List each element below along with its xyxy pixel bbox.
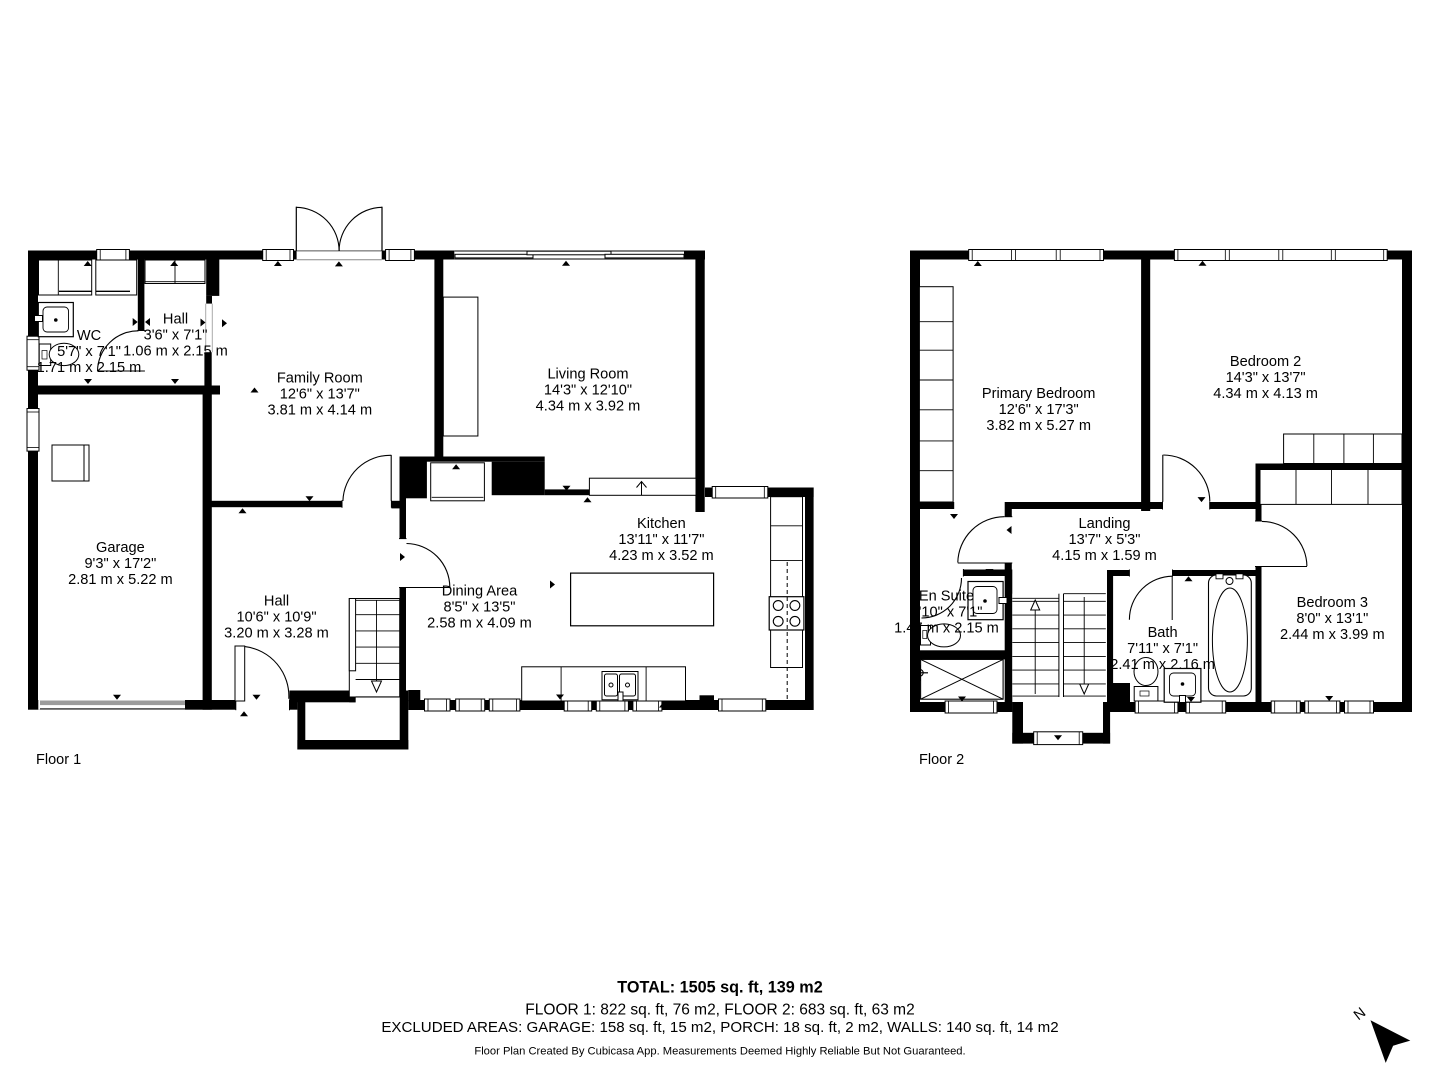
svg-text:4.34 m x 3.92 m: 4.34 m x 3.92 m [536,399,641,415]
svg-text:2.81 m x 5.22 m: 2.81 m x 5.22 m [68,572,173,588]
svg-text:2.58 m x 4.09 m: 2.58 m x 4.09 m [427,615,532,631]
svg-text:Floor Plan Created By Cubicasa: Floor Plan Created By Cubicasa App. Meas… [474,1046,965,1058]
svg-text:7'11" x 7'1": 7'11" x 7'1" [1127,641,1198,657]
svg-text:9'3" x 17'2": 9'3" x 17'2" [84,556,156,572]
svg-text:12'6" x 17'3": 12'6" x 17'3" [999,402,1079,418]
svg-text:10'6" x 10'9": 10'6" x 10'9" [236,609,316,625]
svg-text:1.06 m x 2.15 m: 1.06 m x 2.15 m [123,343,228,359]
svg-text:Primary Bedroom: Primary Bedroom [982,386,1096,402]
svg-text:FLOOR 1: 822 sq. ft, 76 m2, FL: FLOOR 1: 822 sq. ft, 76 m2, FLOOR 2: 683… [525,1001,914,1018]
svg-text:4.34 m x 4.13 m: 4.34 m x 4.13 m [1213,386,1318,402]
svg-text:8'5" x 13'5": 8'5" x 13'5" [444,599,516,615]
svg-text:12'6" x 13'7": 12'6" x 13'7" [280,387,360,403]
svg-text:Family Room: Family Room [277,371,363,387]
svg-text:Landing: Landing [1079,516,1131,532]
svg-text:5'7" x 7'1": 5'7" x 7'1" [57,344,121,360]
svg-text:TOTAL: 1505 sq. ft, 139 m2: TOTAL: 1505 sq. ft, 139 m2 [617,978,822,996]
svg-text:3.20 m x 3.28 m: 3.20 m x 3.28 m [224,625,329,641]
svg-text:EXCLUDED AREAS: GARAGE: 158 sq: EXCLUDED AREAS: GARAGE: 158 sq. ft, 15 m… [381,1019,1058,1036]
svg-text:Dining Area: Dining Area [442,583,518,599]
svg-text:8'0" x 13'1": 8'0" x 13'1" [1296,611,1368,627]
svg-text:WC: WC [77,328,101,344]
svg-text:Garage: Garage [96,540,145,556]
svg-text:14'3" x 13'7": 14'3" x 13'7" [1226,370,1306,386]
svg-text:En Suite: En Suite [919,589,974,605]
svg-text:Bedroom 2: Bedroom 2 [1230,354,1301,370]
svg-text:3.82 m x 5.27 m: 3.82 m x 5.27 m [986,418,1091,434]
svg-text:13'7" x 5'3": 13'7" x 5'3" [1069,532,1141,548]
svg-text:2.41 m x 2.16 m: 2.41 m x 2.16 m [1110,657,1215,673]
svg-text:Kitchen: Kitchen [637,516,686,532]
svg-text:13'11" x 11'7": 13'11" x 11'7" [618,532,704,548]
svg-text:Hall: Hall [163,311,188,327]
svg-text:Bath: Bath [1148,625,1178,641]
svg-text:7'10" x 7'1": 7'10" x 7'1" [911,605,983,621]
svg-text:14'3" x 12'10": 14'3" x 12'10" [544,383,632,399]
svg-text:1.47 m x 2.15 m: 1.47 m x 2.15 m [894,621,999,637]
svg-text:4.23 m x 3.52 m: 4.23 m x 3.52 m [609,548,714,564]
svg-text:1.71 m x 2.15 m: 1.71 m x 2.15 m [37,360,142,376]
svg-text:Floor 2: Floor 2 [919,752,964,768]
svg-text:Living Room: Living Room [547,367,628,383]
svg-text:4.15 m x 1.59 m: 4.15 m x 1.59 m [1052,548,1157,564]
svg-text:Bedroom 3: Bedroom 3 [1297,595,1368,611]
svg-text:2.44 m x 3.99 m: 2.44 m x 3.99 m [1280,627,1385,643]
svg-text:3.81 m x 4.14 m: 3.81 m x 4.14 m [267,403,372,419]
svg-text:Floor 1: Floor 1 [36,752,81,768]
svg-text:Hall: Hall [264,593,289,609]
svg-text:3'6" x 7'1": 3'6" x 7'1" [144,327,208,343]
